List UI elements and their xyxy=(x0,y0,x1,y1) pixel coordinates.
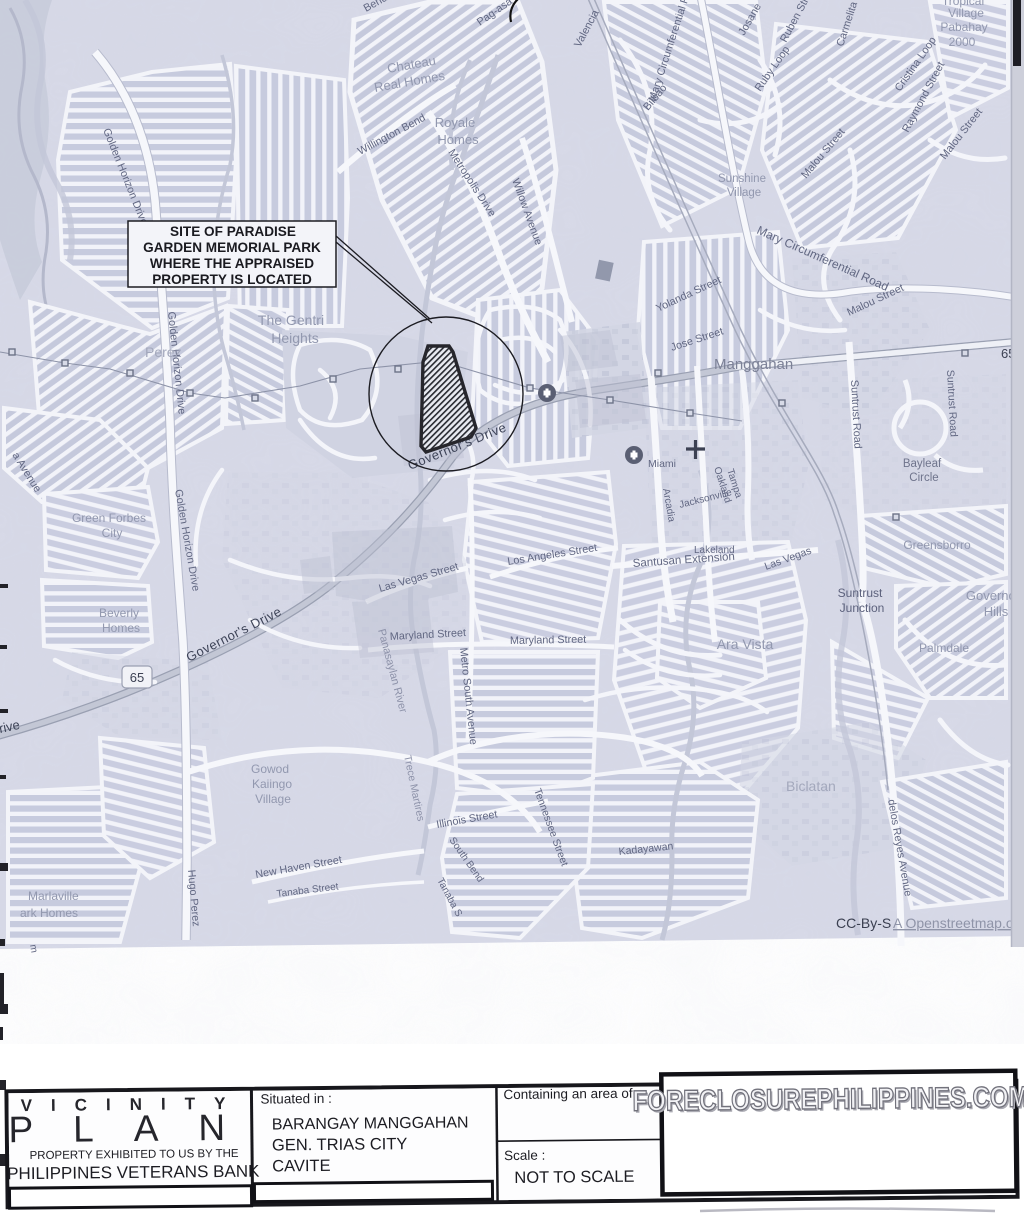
svg-text:Maryland Street: Maryland Street xyxy=(510,634,586,647)
svg-text:Palmdale: Palmdale xyxy=(919,641,969,655)
svg-text:PROPERTY EXHIBITED TO US BY TH: PROPERTY EXHIBITED TO US BY THE xyxy=(30,1148,239,1162)
svg-text:Green Forbes: Green Forbes xyxy=(72,511,146,525)
svg-text:Marlaville: Marlaville xyxy=(28,889,79,903)
svg-text:BARANGAY MANGGAHAN: BARANGAY MANGGAHAN xyxy=(272,1114,469,1133)
svg-text:WHERE THE APPRAISED: WHERE THE APPRAISED xyxy=(150,256,314,271)
svg-text:Bayleaf: Bayleaf xyxy=(903,458,942,470)
svg-text:PROPERTY IS LOCATED: PROPERTY IS LOCATED xyxy=(152,272,312,287)
svg-text:Kaiingo: Kaiingo xyxy=(252,777,292,791)
svg-text:Gowod: Gowod xyxy=(251,762,289,776)
svg-text:Containing an area of :: Containing an area of : xyxy=(503,1086,640,1102)
svg-text:City: City xyxy=(102,526,123,540)
svg-text:Sunshine: Sunshine xyxy=(718,173,766,185)
svg-text:2000: 2000 xyxy=(949,35,976,49)
svg-text:GARDEN MEMORIAL PARK: GARDEN MEMORIAL PARK xyxy=(143,240,321,255)
svg-text:Miami: Miami xyxy=(648,458,676,470)
svg-text:Ara Vista: Ara Vista xyxy=(717,636,774,652)
svg-text:Homes: Homes xyxy=(437,132,479,147)
svg-text:Royale: Royale xyxy=(435,115,475,130)
svg-text:Circle: Circle xyxy=(909,472,938,484)
svg-text:Situated in :: Situated in : xyxy=(260,1091,331,1107)
svg-text:CC-By-S: CC-By-S xyxy=(836,915,891,931)
svg-text:Village: Village xyxy=(255,792,291,806)
svg-text:FORECLOSUREPHILIPPINES.COM: FORECLOSUREPHILIPPINES.COM xyxy=(632,1080,1024,1117)
svg-text:PHILIPPINES VETERANS BANK: PHILIPPINES VETERANS BANK xyxy=(7,1162,260,1184)
svg-text:Manggahan: Manggahan xyxy=(714,356,793,373)
svg-text:Heights: Heights xyxy=(271,330,318,346)
svg-text:CAVITE: CAVITE xyxy=(272,1157,331,1176)
svg-text:Hills: Hills xyxy=(984,604,1009,619)
svg-text:PLAN: PLAN xyxy=(8,1107,265,1151)
svg-text:m: m xyxy=(27,944,39,954)
svg-text:Junction: Junction xyxy=(840,601,885,615)
svg-text:Pabahay: Pabahay xyxy=(940,20,987,34)
svg-text:NOT TO SCALE: NOT TO SCALE xyxy=(514,1168,634,1187)
svg-text:Greensborro: Greensborro xyxy=(903,538,971,552)
svg-text:SITE OF PARADISE: SITE OF PARADISE xyxy=(170,224,296,239)
svg-text:Homes: Homes xyxy=(102,621,140,635)
svg-text:Village: Village xyxy=(727,187,761,199)
svg-text:GEN. TRIAS CITY: GEN. TRIAS CITY xyxy=(272,1135,408,1154)
svg-text:The Gentri: The Gentri xyxy=(258,312,324,328)
svg-text:Beverly: Beverly xyxy=(99,606,139,620)
svg-text:Perez: Perez xyxy=(145,344,182,360)
svg-text:A Openstreetmap.org: A Openstreetmap.org xyxy=(893,915,1024,931)
svg-text:Village: Village xyxy=(948,6,984,20)
svg-text:Suntrust: Suntrust xyxy=(838,586,883,600)
svg-text:ark Homes: ark Homes xyxy=(20,906,78,920)
svg-text:Biclatan: Biclatan xyxy=(786,778,836,794)
svg-text:65: 65 xyxy=(130,670,144,685)
svg-text:Scale :: Scale : xyxy=(504,1148,545,1163)
